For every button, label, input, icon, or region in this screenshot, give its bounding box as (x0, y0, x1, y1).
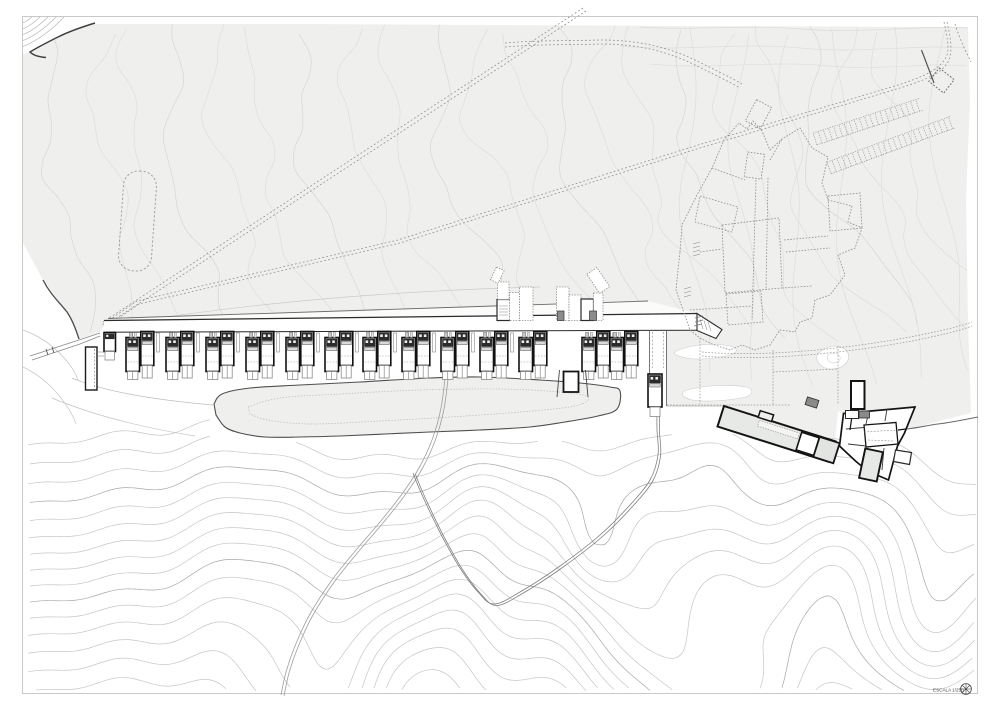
svg-text:ESCALA 1/250: ESCALA 1/250 (933, 688, 964, 693)
